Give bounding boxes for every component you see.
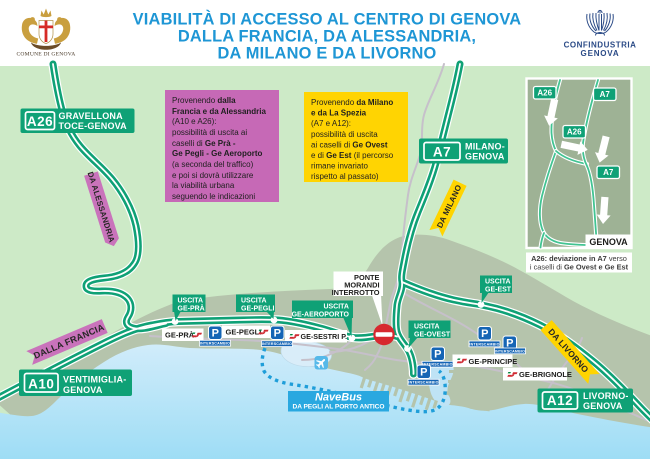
svg-text:caselli di Ge Prà -: caselli di Ge Prà - — [172, 139, 236, 148]
svg-text:GE-SESTRI P.: GE-SESTRI P. — [301, 332, 348, 341]
svg-text:MILANO-: MILANO- — [465, 141, 505, 151]
svg-text:VENTIMIGLIA-: VENTIMIGLIA- — [63, 374, 126, 384]
svg-text:GENOVA: GENOVA — [589, 237, 628, 247]
svg-text:A7: A7 — [603, 168, 614, 177]
svg-text:COMUNE DI GENOVA: COMUNE DI GENOVA — [16, 52, 75, 58]
svg-text:LIVORNO-: LIVORNO- — [583, 391, 629, 401]
svg-text:e poi si dovrà utilizzare: e poi si dovrà utilizzare — [172, 171, 254, 180]
svg-text:A26: A26 — [537, 89, 552, 98]
svg-text:Provenendo da Milano: Provenendo da Milano — [311, 98, 393, 107]
svg-text:GE-PRÀ: GE-PRÀ — [178, 303, 205, 312]
svg-text:A7: A7 — [600, 90, 611, 99]
svg-text:DALLA FRANCIA, DA ALESSANDRIA,: DALLA FRANCIA, DA ALESSANDRIA, — [178, 28, 476, 46]
svg-text:possibilità di uscita: possibilità di uscita — [311, 130, 378, 139]
svg-text:GRAVELLONA: GRAVELLONA — [59, 111, 124, 121]
svg-text:INTERROTTO: INTERROTTO — [332, 288, 380, 297]
svg-text:GE-PRÀ: GE-PRÀ — [165, 331, 195, 340]
svg-text:DA MILANO E DA LIVORNO: DA MILANO E DA LIVORNO — [218, 45, 437, 63]
svg-text:(A7 e A12):: (A7 e A12): — [311, 119, 351, 128]
svg-text:la viabilità urbana: la viabilità urbana — [172, 181, 235, 190]
svg-text:ai caselli di Ge Ovest: ai caselli di Ge Ovest — [311, 140, 388, 149]
svg-text:USCITA: USCITA — [178, 297, 204, 304]
svg-text:A12: A12 — [547, 393, 573, 408]
svg-text:TOCE-GENOVA: TOCE-GENOVA — [59, 121, 128, 131]
svg-text:Provenendo dalla: Provenendo dalla — [172, 96, 236, 105]
svg-text:Ge Pegli - Ge Aeroporto: Ge Pegli - Ge Aeroporto — [172, 149, 262, 158]
svg-text:GE-PRINCIPE: GE-PRINCIPE — [469, 357, 518, 366]
svg-text:GE-OVEST: GE-OVEST — [414, 331, 451, 338]
svg-text:GE-PEGLI: GE-PEGLI — [226, 328, 262, 337]
svg-text:possibilità di uscita ai: possibilità di uscita ai — [172, 128, 247, 137]
svg-text:USCITA: USCITA — [241, 297, 267, 304]
svg-text:GE-EST: GE-EST — [485, 286, 512, 293]
svg-text:A7: A7 — [433, 144, 451, 159]
svg-text:GE-PEGLI: GE-PEGLI — [241, 305, 275, 312]
svg-text:VIABILITÀ DI ACCESSO AL CENTRO: VIABILITÀ DI ACCESSO AL CENTRO DI GENOVA — [133, 10, 522, 29]
svg-text:seguendo le indicazioni: seguendo le indicazioni — [172, 192, 255, 201]
svg-text:e di Ge Est (il percorso: e di Ge Est (il percorso — [311, 151, 394, 160]
svg-text:USCITA: USCITA — [414, 323, 440, 330]
svg-text:A10: A10 — [28, 376, 54, 391]
svg-text:DA PEGLI AL PORTO ANTICO: DA PEGLI AL PORTO ANTICO — [293, 404, 385, 411]
svg-text:A26: A26 — [567, 128, 582, 137]
svg-text:(a seconda del traffico): (a seconda del traffico) — [172, 160, 254, 169]
svg-text:e da La Spezia: e da La Spezia — [311, 109, 367, 118]
svg-text:(A10 e A26):: (A10 e A26): — [172, 117, 216, 126]
svg-text:GE-AEROPORTO: GE-AEROPORTO — [292, 311, 350, 318]
svg-text:USCITA: USCITA — [485, 278, 511, 285]
svg-text:rispetto al passato): rispetto al passato) — [311, 172, 379, 181]
svg-text:GENOVA: GENOVA — [583, 401, 623, 411]
svg-text:A26: A26 — [27, 114, 53, 129]
svg-text:GENOVA: GENOVA — [465, 151, 505, 161]
svg-text:GENOVA: GENOVA — [63, 385, 103, 395]
svg-text:Francia e da Alessandria: Francia e da Alessandria — [172, 107, 267, 116]
svg-text:i caselli di Ge Ovest e Ge Est: i caselli di Ge Ovest e Ge Est — [530, 262, 629, 271]
svg-text:GENOVA: GENOVA — [581, 49, 620, 58]
svg-text:NaveBus: NaveBus — [315, 391, 362, 403]
svg-text:rimane invariato: rimane invariato — [311, 162, 368, 171]
svg-text:GE-BRIGNOLE: GE-BRIGNOLE — [519, 370, 572, 379]
svg-text:USCITA: USCITA — [323, 303, 349, 310]
